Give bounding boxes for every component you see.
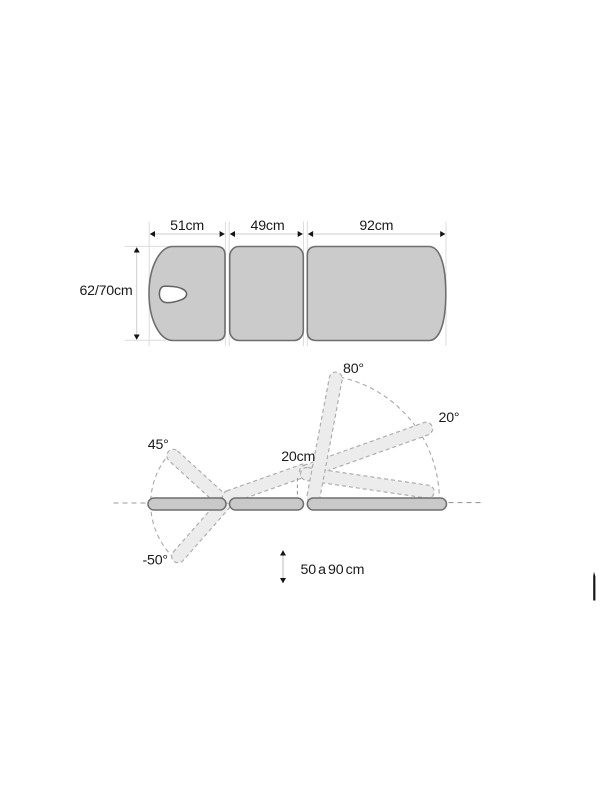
svg-text:92cm: 92cm (359, 218, 393, 234)
svg-text:20°: 20° (439, 410, 460, 426)
svg-text:62/70cm: 62/70cm (79, 283, 132, 299)
svg-text:45°: 45° (148, 437, 169, 453)
svg-text:20cm: 20cm (281, 449, 315, 465)
svg-text:80°: 80° (343, 361, 364, 377)
svg-text:49cm: 49cm (251, 218, 285, 234)
svg-text:51cm: 51cm (170, 218, 204, 234)
svg-text:50 a 90 cm: 50 a 90 cm (301, 562, 365, 578)
svg-text:-50°: -50° (143, 552, 168, 568)
